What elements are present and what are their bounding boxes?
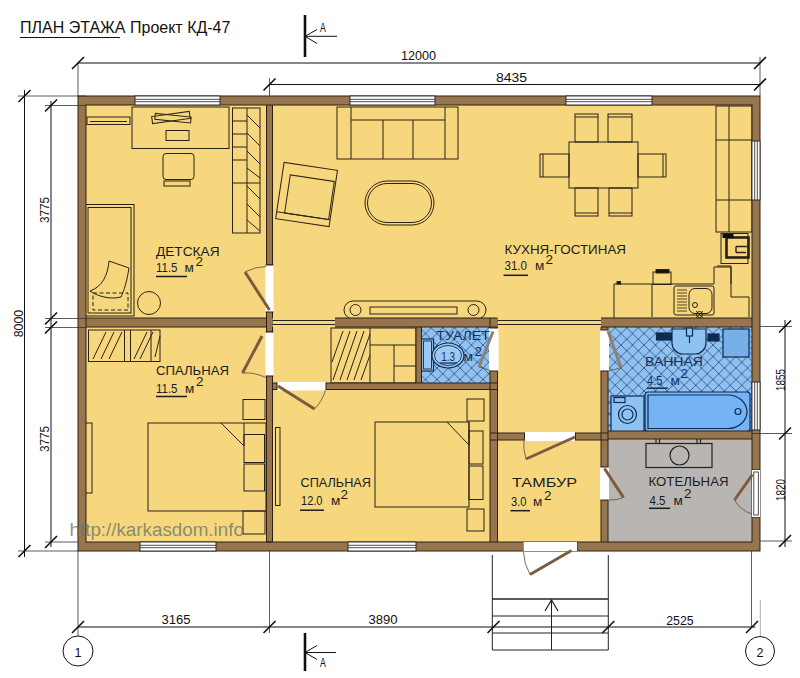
svg-text:12000: 12000 — [401, 49, 436, 63]
svg-text:4.5: 4.5 — [647, 373, 663, 388]
svg-text:1.3: 1.3 — [441, 349, 455, 364]
svg-text:м: м — [331, 493, 340, 508]
svg-text:м: м — [185, 381, 194, 396]
svg-text:1820: 1820 — [774, 479, 788, 501]
svg-text:2: 2 — [196, 254, 204, 269]
svg-text:31.0: 31.0 — [505, 258, 528, 273]
svg-text:http://karkasdom.info: http://karkasdom.info — [70, 519, 244, 540]
svg-text:4.5: 4.5 — [650, 493, 666, 508]
svg-text:м: м — [464, 349, 473, 364]
svg-text:11.5: 11.5 — [156, 381, 178, 396]
svg-text:3890: 3890 — [369, 613, 398, 627]
svg-text:КУХНЯ-ГОСТИНАЯ: КУХНЯ-ГОСТИНАЯ — [505, 242, 627, 257]
svg-text:2: 2 — [546, 252, 554, 267]
svg-text:2: 2 — [681, 366, 689, 381]
svg-text:м: м — [185, 260, 194, 275]
svg-text:3.0: 3.0 — [511, 494, 527, 509]
svg-text:3775: 3775 — [38, 426, 52, 452]
svg-text:8000: 8000 — [12, 310, 26, 338]
svg-text:2: 2 — [341, 487, 349, 502]
svg-text:А: А — [320, 656, 326, 670]
svg-text:8435: 8435 — [496, 71, 527, 85]
svg-text:12.0: 12.0 — [301, 493, 323, 508]
svg-text:м: м — [535, 258, 544, 273]
svg-text:1: 1 — [75, 646, 82, 660]
svg-text:2525: 2525 — [666, 614, 694, 628]
svg-text:ДЕТСКАЯ: ДЕТСКАЯ — [156, 244, 220, 259]
svg-text:2: 2 — [684, 486, 692, 501]
svg-text:3775: 3775 — [38, 197, 52, 223]
svg-text:м: м — [533, 494, 542, 509]
svg-text:11.5: 11.5 — [156, 260, 178, 275]
svg-text:СПАЛЬНАЯ: СПАЛЬНАЯ — [156, 363, 229, 378]
svg-text:СПАЛЬНАЯ: СПАЛЬНАЯ — [301, 475, 372, 490]
svg-text:ВАННАЯ: ВАННАЯ — [645, 354, 703, 369]
svg-text:ПЛАН ЭТАЖА Проект КД-47: ПЛАН ЭТАЖА Проект КД-47 — [20, 19, 231, 36]
svg-text:2: 2 — [196, 374, 204, 389]
svg-text:м: м — [671, 373, 680, 388]
svg-text:3165: 3165 — [162, 613, 191, 627]
svg-text:2: 2 — [475, 344, 483, 359]
svg-text:ТУАЛЕТ: ТУАЛЕТ — [436, 328, 490, 343]
svg-text:2: 2 — [757, 646, 764, 660]
svg-text:А: А — [320, 21, 326, 35]
svg-text:м: м — [674, 493, 683, 508]
svg-text:1855: 1855 — [774, 369, 788, 391]
svg-text:2: 2 — [544, 488, 552, 503]
